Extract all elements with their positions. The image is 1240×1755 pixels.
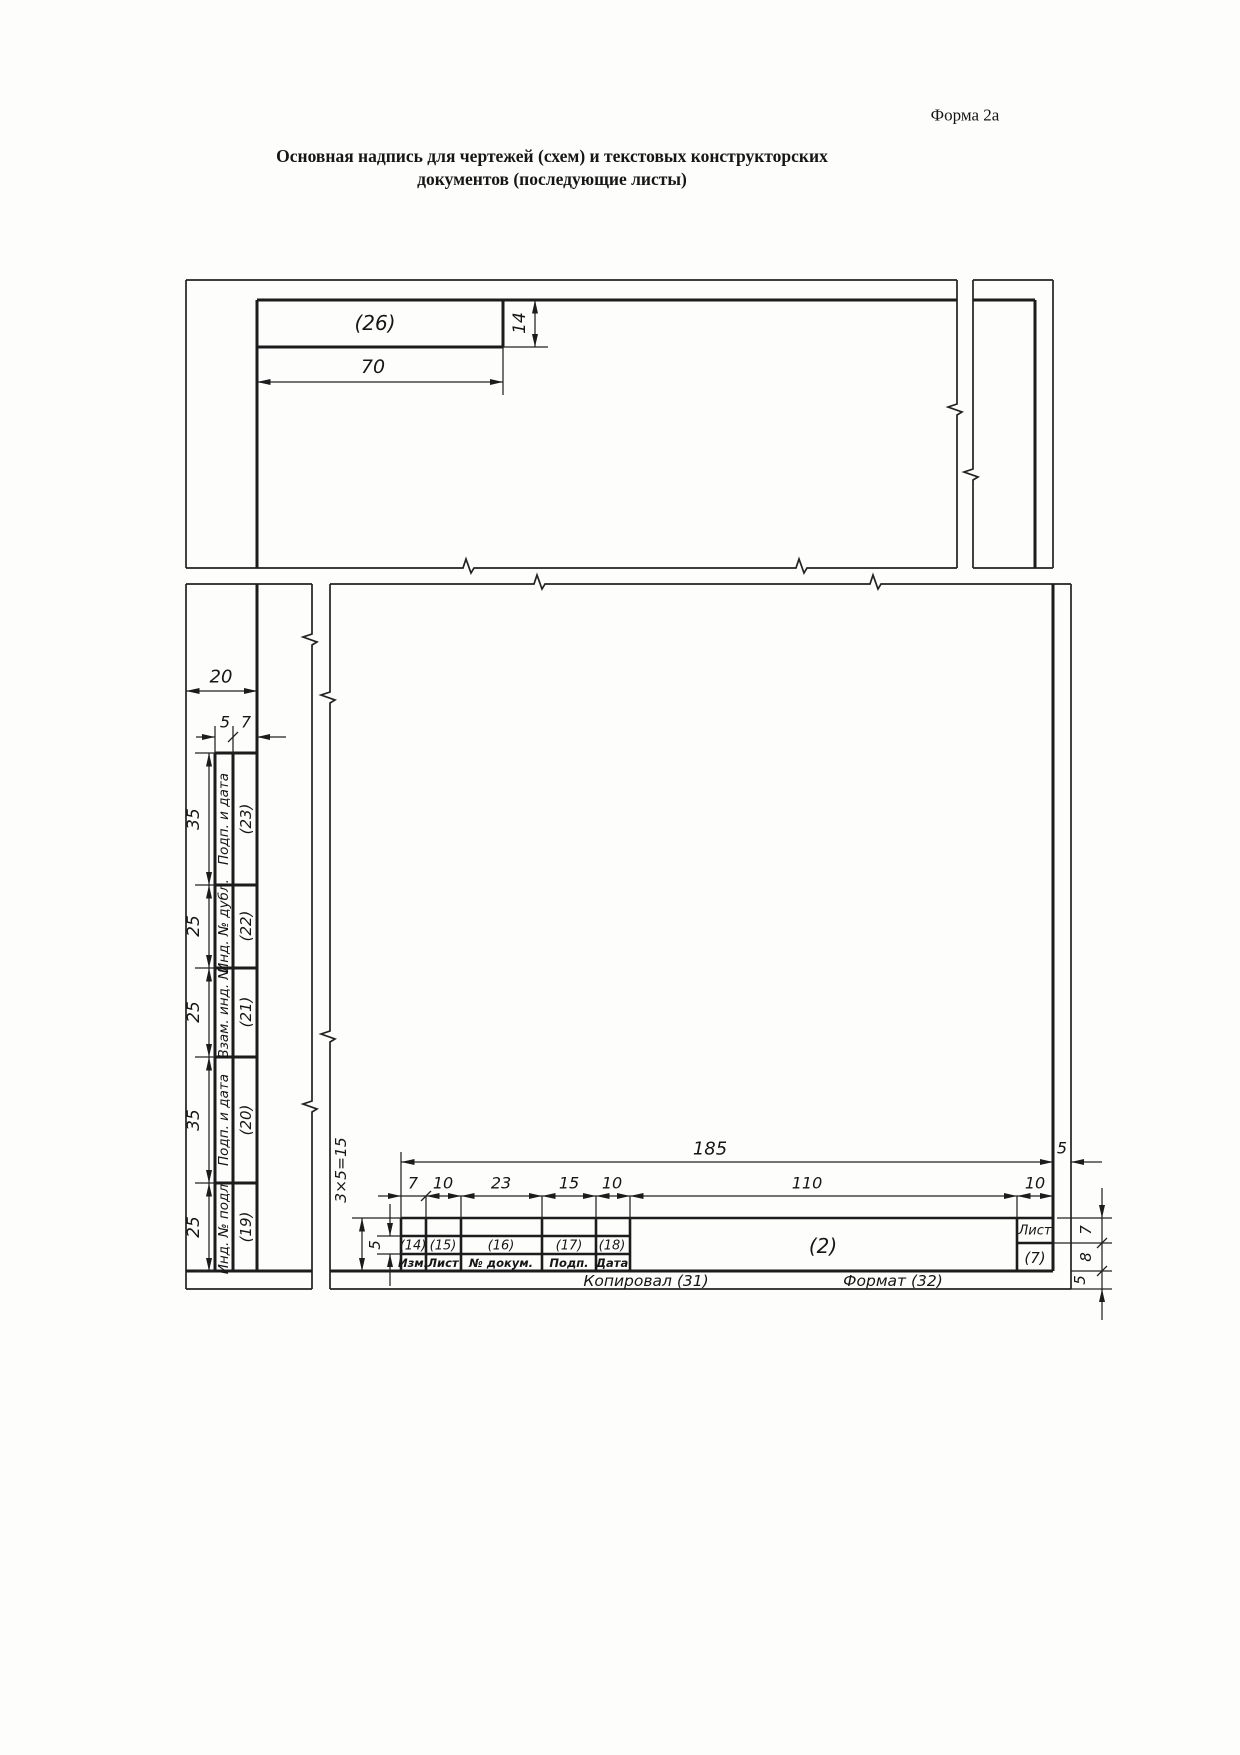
dim-14: 14 <box>510 312 530 334</box>
sheet-col-header: Лист <box>1018 1224 1052 1239</box>
cell-23-number: (23) <box>237 804 255 835</box>
dim-35-cell23: 35 <box>184 808 204 830</box>
header-data: Дата <box>595 1256 629 1270</box>
dim-70: 70 <box>361 356 385 378</box>
break-line-bottom <box>186 559 957 573</box>
dim-col-10a: 10 <box>433 1174 453 1193</box>
break-line-top <box>330 575 1071 589</box>
dim-8-right: 8 <box>1077 1252 1095 1262</box>
cell-19-number: (19) <box>237 1212 255 1243</box>
dim-185: 185 <box>693 1139 727 1160</box>
header-dokum: № докум. <box>468 1256 533 1270</box>
dim-col-23: 23 <box>491 1174 511 1193</box>
cell-20-number: (20) <box>237 1105 255 1136</box>
dim-5-right-margin: 5 <box>1057 1139 1067 1158</box>
dim-col-7: 7 <box>408 1174 419 1193</box>
header-list: Лист <box>426 1256 459 1270</box>
dim-35-cell20: 35 <box>184 1109 204 1131</box>
left-margin-strip: 20 5 7 35 25 25 35 25 <box>184 584 317 1289</box>
dim-7: 7 <box>241 713 252 732</box>
dim-25-cell21: 25 <box>184 1001 204 1023</box>
dim-col-110: 110 <box>792 1174 823 1193</box>
dim-20: 20 <box>210 667 233 688</box>
cell-19-name: Инд. № подл. <box>216 1180 232 1275</box>
field-18: (18) <box>599 1239 626 1254</box>
figure-title-line2: документов (последующие листы) <box>417 169 687 189</box>
title-block-texts: (14) (15) (16) (17) (18) Изм. Лист № док… <box>398 1224 1052 1291</box>
cell-22-number: (22) <box>237 911 255 942</box>
top-view-sheet-edges <box>186 280 1053 573</box>
footer-kopiroval: Копировал (31) <box>583 1272 708 1290</box>
top-view-frame-lines <box>257 300 1035 568</box>
dim-col-10b: 10 <box>602 1174 622 1193</box>
dim-col-10c: 10 <box>1025 1174 1045 1193</box>
field-7: (7) <box>1024 1249 1045 1267</box>
dim-5-bottom-margin: 5 <box>1071 1275 1089 1285</box>
document-page: Форма 2а Основная надпись для чертежей (… <box>0 0 1240 1755</box>
cell-20-name: Подп. и дата <box>216 1074 232 1166</box>
title-block-view: (14) (15) (16) (17) (18) Изм. Лист № док… <box>321 575 1112 1320</box>
form-number-label: Форма 2а <box>931 106 1000 125</box>
field-26-label: (26) <box>354 311 395 335</box>
title-block-dimensions: 185 5 7 10 23 15 10 110 10 <box>332 1137 1112 1320</box>
header-podp: Подп. <box>549 1256 588 1270</box>
strip-cell-labels: Подп. и дата Инд. № дубл. Взам. инд. № П… <box>216 773 255 1274</box>
figure-title-line1: Основная надпись для чертежей (схем) и т… <box>276 146 828 166</box>
dim-3x5-15: 3×5=15 <box>332 1137 350 1202</box>
dim-5-row: 5 <box>366 1240 384 1250</box>
footer-format: Формат (32) <box>843 1272 943 1290</box>
dim-25-cell19: 25 <box>184 1216 204 1238</box>
dim-5: 5 <box>220 713 230 732</box>
field-2: (2) <box>809 1234 837 1258</box>
dim-7-right: 7 <box>1077 1225 1095 1235</box>
field-14: (14) <box>400 1239 427 1254</box>
cell-23-name: Подп. и дата <box>216 773 232 865</box>
top-view: 70 14 (26) <box>186 280 1053 573</box>
break-line-right <box>948 280 962 568</box>
main-frame-lines <box>330 584 1053 1271</box>
break-line-strip-right <box>303 584 317 1289</box>
field-15: (15) <box>430 1239 457 1254</box>
field-16: (16) <box>488 1239 515 1254</box>
field-17: (17) <box>556 1239 583 1254</box>
cell-21-number: (21) <box>237 997 255 1028</box>
dim-25-cell22: 25 <box>184 915 204 937</box>
break-line-sliver-left <box>964 280 978 568</box>
header-izm: Изм. <box>398 1256 428 1270</box>
cell-21-name: Взам. инд. № <box>216 965 232 1058</box>
form2a-figure: Форма 2а Основная надпись для чертежей (… <box>0 0 1240 1755</box>
cell-22-name: Инд. № дубл. <box>216 879 232 973</box>
dim-col-15: 15 <box>559 1174 579 1193</box>
